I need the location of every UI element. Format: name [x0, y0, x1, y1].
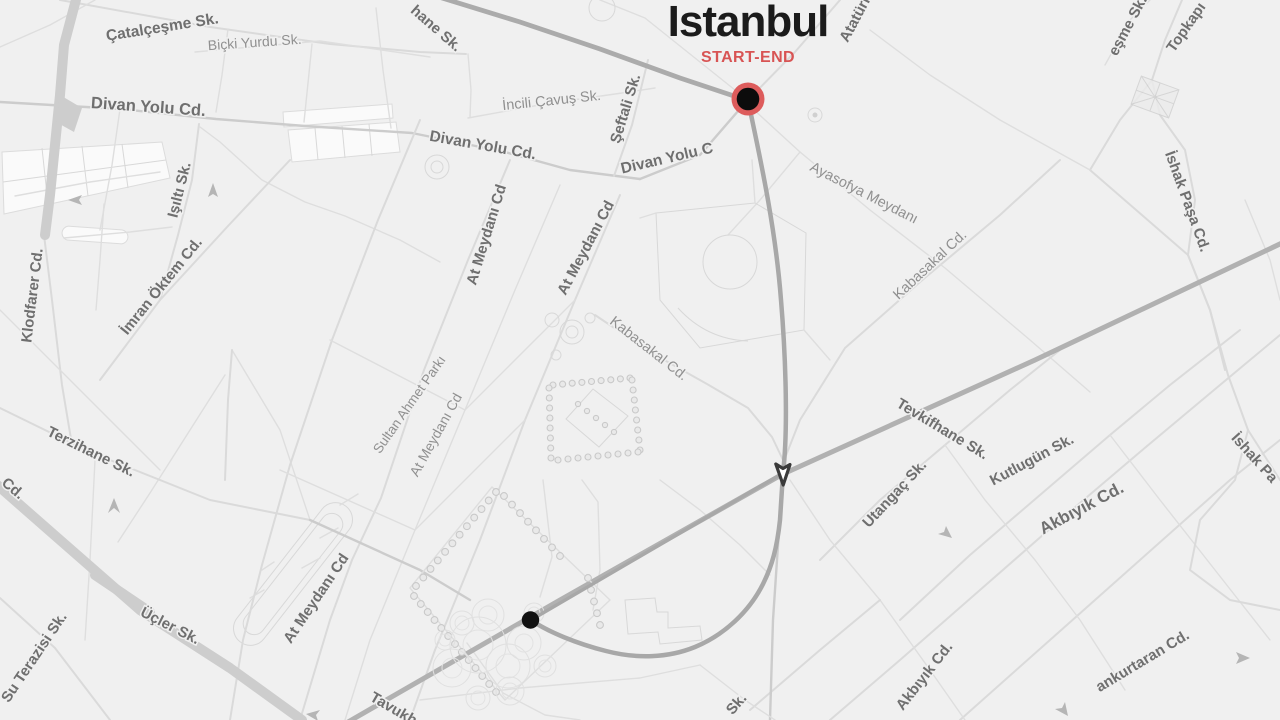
- svg-text:Istanbul: Istanbul: [668, 0, 829, 46]
- svg-text:START-END: START-END: [701, 49, 795, 66]
